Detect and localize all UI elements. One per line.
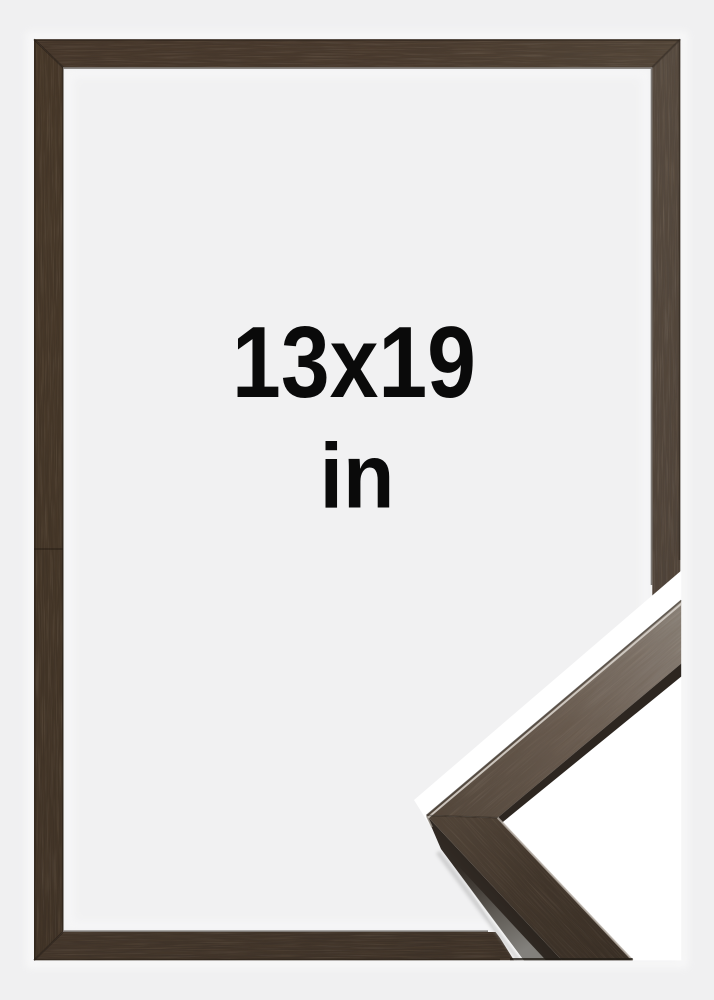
svg-text:in: in: [320, 424, 395, 527]
svg-text:13x19: 13x19: [232, 306, 476, 419]
